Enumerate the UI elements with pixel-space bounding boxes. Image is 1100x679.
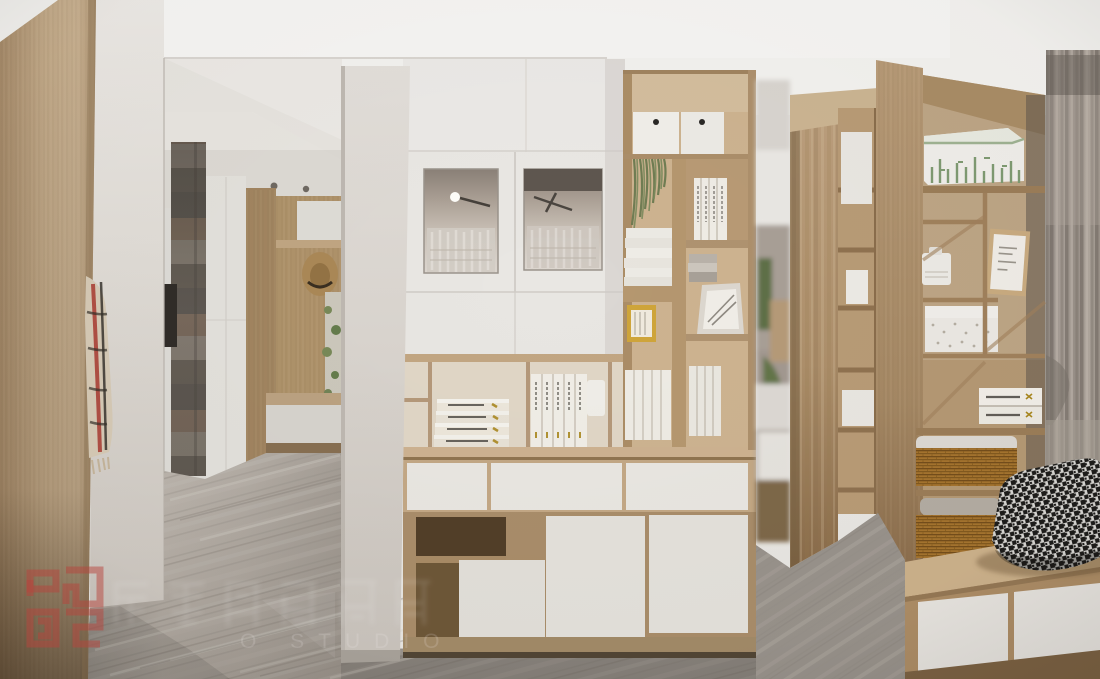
svg-text:O STUDIO: O STUDIO (240, 630, 454, 653)
